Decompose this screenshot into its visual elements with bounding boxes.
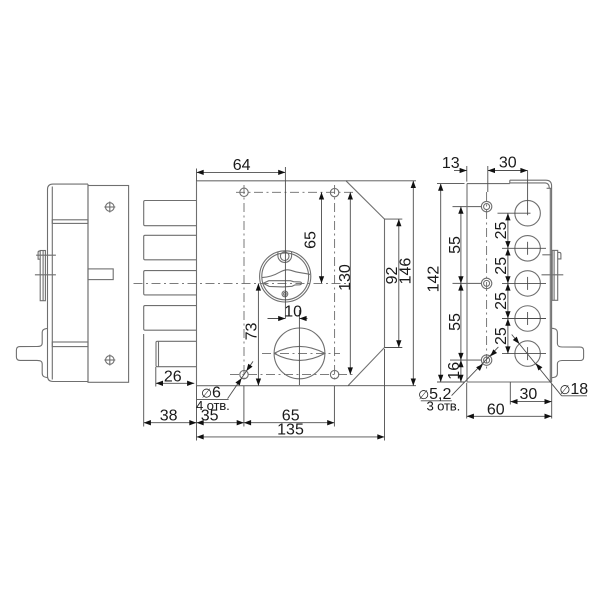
svg-text:60: 60 xyxy=(487,402,505,419)
svg-text:65: 65 xyxy=(302,231,319,249)
svg-text:146: 146 xyxy=(398,258,415,285)
svg-text:25: 25 xyxy=(493,327,510,345)
svg-text:142: 142 xyxy=(425,266,442,293)
svg-text:∅18: ∅18 xyxy=(559,381,588,398)
svg-text:26: 26 xyxy=(164,369,182,386)
svg-text:130: 130 xyxy=(337,264,354,291)
svg-text:135: 135 xyxy=(277,422,304,439)
svg-text:55: 55 xyxy=(447,236,464,254)
svg-text:10: 10 xyxy=(284,303,302,320)
svg-text:13: 13 xyxy=(442,155,460,172)
svg-text:73: 73 xyxy=(244,323,261,341)
svg-text:64: 64 xyxy=(233,157,251,174)
svg-text:16: 16 xyxy=(446,362,463,380)
svg-text:25: 25 xyxy=(493,292,510,310)
svg-text:25: 25 xyxy=(493,222,510,240)
svg-text:30: 30 xyxy=(499,154,517,171)
svg-text:55: 55 xyxy=(447,313,464,331)
svg-text:30: 30 xyxy=(520,386,538,403)
svg-text:25: 25 xyxy=(493,257,510,275)
svg-text:38: 38 xyxy=(160,407,178,424)
svg-text:4 отв.: 4 отв. xyxy=(196,398,230,413)
svg-text:3 отв.: 3 отв. xyxy=(427,399,461,414)
